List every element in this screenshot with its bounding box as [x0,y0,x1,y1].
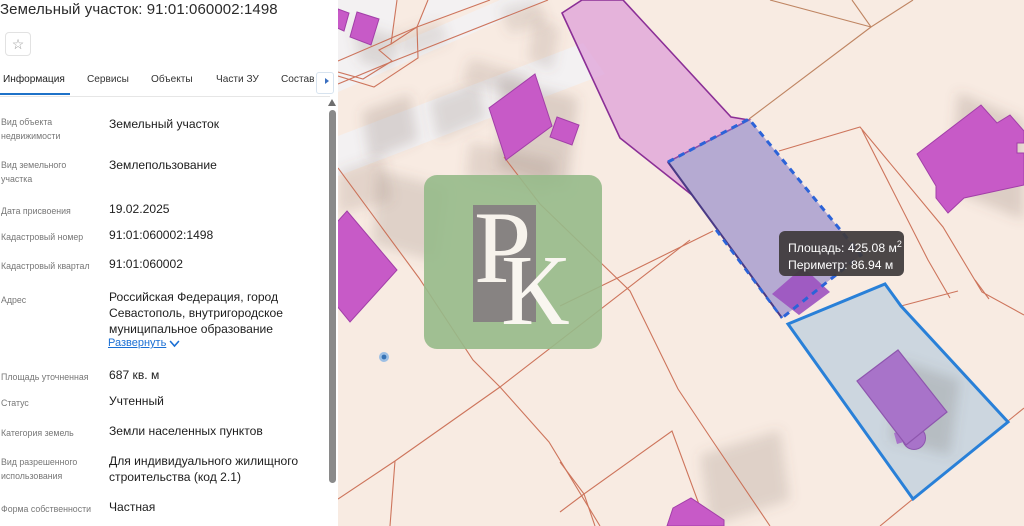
svg-text:К: К [501,234,569,346]
